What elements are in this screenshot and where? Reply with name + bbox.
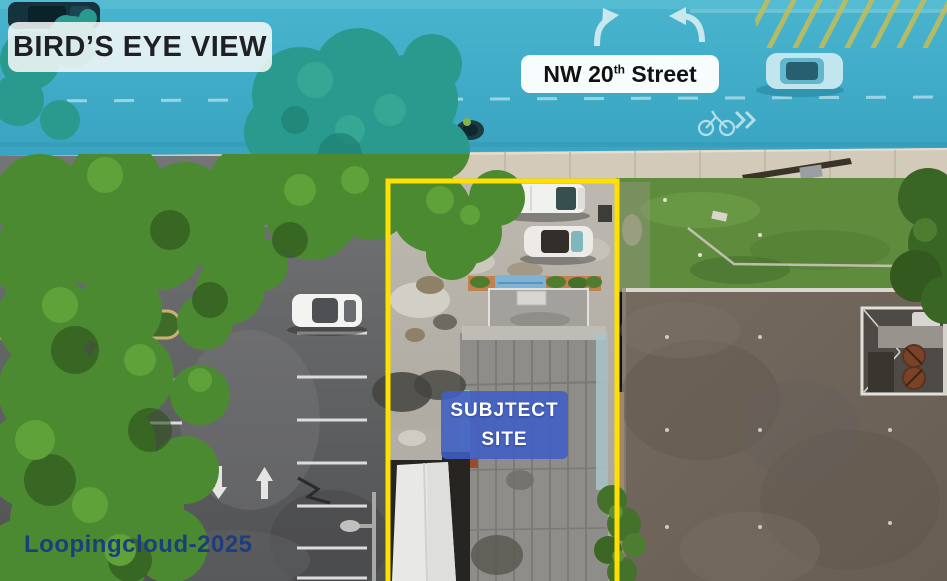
white-car-parking-lot — [287, 294, 367, 336]
watermark: Loopingcloud-2025 — [24, 530, 253, 560]
white-car-site — [520, 226, 596, 265]
subject-site-badge: SUBJTECT SITE — [441, 391, 568, 459]
title-badge: BIRD’S EYE VIEW — [8, 22, 272, 72]
warehouse-roof — [620, 288, 947, 581]
site-label-line2: SITE — [481, 425, 527, 454]
street-name: NW 20 — [543, 61, 613, 87]
watermark-text: Loopingcloud-2025 — [24, 531, 253, 559]
site-label-line1: SUBJTECT — [450, 396, 558, 425]
street-suffix: Street — [625, 61, 697, 87]
small-white-roof — [392, 462, 456, 581]
aerial-photo — [0, 0, 947, 581]
light-car-street — [756, 53, 844, 97]
page-title: BIRD’S EYE VIEW — [13, 31, 267, 64]
birds-eye-view-image: BIRD’S EYE VIEW NW 20th Street SUBJTECT … — [0, 0, 947, 581]
street-ordinal: th — [614, 62, 625, 76]
street-name-badge: NW 20th Street — [521, 55, 719, 93]
